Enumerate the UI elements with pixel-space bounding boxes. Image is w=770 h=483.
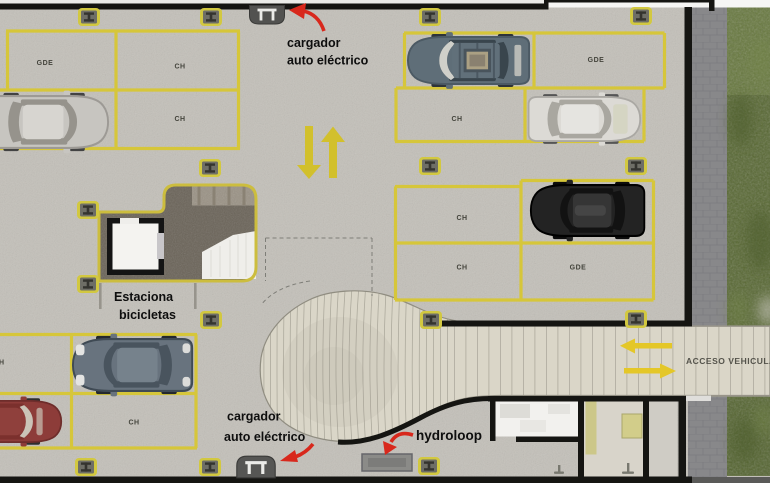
svg-text:CH: CH [456, 215, 467, 222]
svg-text:CH: CH [128, 420, 139, 427]
svg-text:auto eléctrico: auto eléctrico [287, 54, 369, 68]
svg-text:ACCESO VEHICULAR: ACCESO VEHICULAR [686, 356, 770, 366]
svg-text:GDE: GDE [37, 60, 54, 67]
svg-text:CH: CH [174, 64, 185, 71]
svg-text:GDE: GDE [570, 265, 587, 272]
svg-text:CH: CH [451, 116, 462, 123]
svg-text:CH: CH [456, 265, 467, 272]
svg-text:CH: CH [174, 116, 185, 123]
svg-text:Estaciona: Estaciona [114, 290, 174, 304]
svg-text:GDE: GDE [588, 57, 605, 64]
svg-text:CH: CH [0, 360, 5, 367]
svg-text:auto eléctrico: auto eléctrico [224, 430, 306, 444]
svg-text:cargador: cargador [227, 410, 281, 424]
svg-text:hydroloop: hydroloop [416, 428, 482, 443]
svg-text:bicicletas: bicicletas [119, 308, 176, 322]
svg-text:cargador: cargador [287, 36, 341, 50]
